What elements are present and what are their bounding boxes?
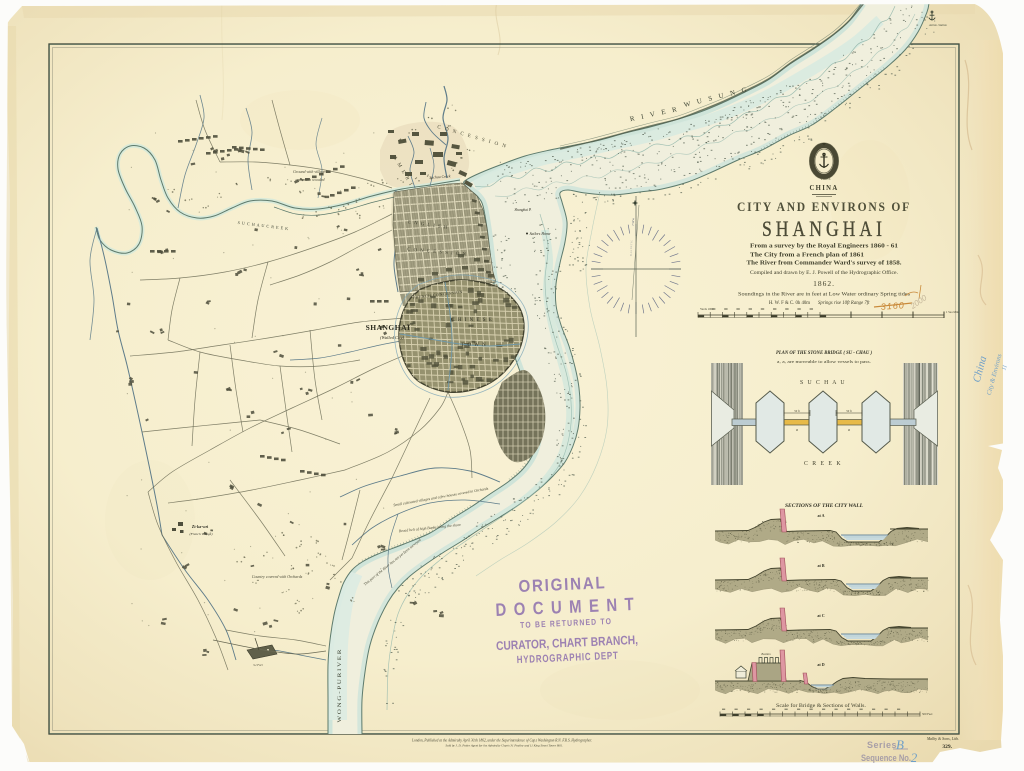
svg-text:Series: Series <box>867 740 897 750</box>
svg-text:a: a <box>796 427 798 432</box>
svg-text:C H I N E S E: C H I N E S E <box>451 318 493 323</box>
svg-text:B: B <box>896 737 904 752</box>
svg-text:Sold by J. D. Potter Agent for: Sold by J. D. Potter Agent for the Admir… <box>446 744 563 748</box>
svg-text:C R E E K: C R E E K <box>804 461 842 467</box>
svg-text:Sailors Home: Sailors Home <box>530 232 551 236</box>
svg-text:ORIGINAL: ORIGINAL <box>518 573 607 596</box>
svg-text:PLAN OF THE STONE BRIDGE: PLAN OF THE STONE BRIDGE ( SU - CHAU ) <box>776 351 872 356</box>
svg-text:T O W N: T O W N <box>461 343 486 348</box>
svg-text:500 Feet: 500 Feet <box>922 712 933 716</box>
svg-text:Shanghai P.: Shanghai P. <box>514 208 531 212</box>
svg-text:50 ft: 50 ft <box>794 409 800 413</box>
svg-text:at B: at B <box>818 563 825 568</box>
svg-text:50 ft: 50 ft <box>846 409 852 413</box>
svg-text:The City from a French pl: The City from a French plan of 1861 <box>750 252 864 259</box>
svg-text:Country covered with Orchards: Country covered with Orchards <box>252 574 303 579</box>
svg-text:Scale for Bridge & Section: Scale for Bridge & Sections of Walls. <box>776 704 866 709</box>
svg-text:Astron. Station: Astron. Station <box>928 23 947 27</box>
svg-text:CITY AND ENVIRONS OF: CITY AND ENVIRONS OF <box>737 199 911 214</box>
svg-text:Yards 1000: Yards 1000 <box>700 307 714 311</box>
svg-text:S.t Fort: S.t Fort <box>253 663 262 667</box>
svg-text:(Walled City): (Walled City) <box>380 335 404 340</box>
svg-text:2: 2 <box>911 750 918 765</box>
svg-text:Sequence No.: Sequence No. <box>861 753 911 764</box>
svg-text:Soundings in the River are: Soundings in the River are in feet at Lo… <box>738 293 910 298</box>
svg-text:1 Sea Mile: 1 Sea Mile <box>946 310 960 314</box>
svg-text:SHANGHAI: SHANGHAI <box>762 216 886 241</box>
svg-text:at A: at A <box>818 513 825 518</box>
svg-text:329.: 329. <box>942 744 952 750</box>
svg-text:Bastion: Bastion <box>761 652 771 656</box>
svg-text:and much wooded: and much wooded <box>295 177 325 182</box>
svg-text:at C: at C <box>817 613 824 618</box>
svg-text:SHANGHAÏ: SHANGHAÏ <box>366 323 411 332</box>
svg-text:SECTIONS OF THE CITY WALL: SECTIONS OF THE CITY WALL <box>785 503 863 509</box>
svg-text:a: a <box>848 427 850 432</box>
svg-text:2°30'W: 2°30'W <box>632 217 635 226</box>
svg-text:CHINA: CHINA <box>810 183 839 192</box>
svg-text:H. W. F & C. 0​h 40​m: H. W. F & C. 0​h 40​m <box>769 301 810 306</box>
svg-text:The River from Commander W: The River from Commander Ward's survey o… <box>747 260 902 267</box>
svg-text:at D: at D <box>817 662 824 667</box>
svg-text:(French Village): (French Village) <box>189 532 213 536</box>
svg-text:W O N G - P U R I V E R: W O N G - P U R I V E R <box>337 649 343 723</box>
svg-text:Compiled and drawn by E. J: Compiled and drawn by E. J. Powell of th… <box>750 271 898 276</box>
svg-text:Springs rise 10​ft Range 7: Springs rise 10​ft Range 7​ft <box>818 301 870 306</box>
svg-text:From a survey by the Roya: From a survey by the Royal Engineers 186… <box>750 243 898 250</box>
svg-text:1862.: 1862. <box>813 279 835 288</box>
svg-text:S U C H A U: S U C H A U <box>800 380 846 386</box>
svg-text:Ground with villages: Ground with villages <box>293 169 327 174</box>
svg-text:Zi-ka-wei: Zi-ka-wei <box>192 524 209 529</box>
svg-text:Price 6.: Price 6. <box>820 177 831 181</box>
